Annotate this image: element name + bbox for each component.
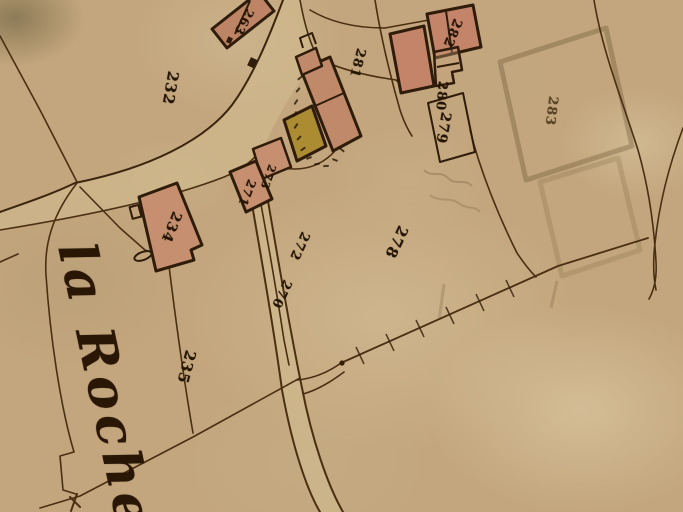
pencil-streak-1 — [439, 284, 444, 320]
boundary-234-east — [168, 258, 193, 433]
left-edge-short-line — [0, 254, 18, 262]
cadastral-map: 2632322812822802792832732712342722702782… — [0, 0, 683, 512]
far-east-curve — [654, 128, 683, 290]
pencil-streak-2 — [551, 281, 557, 308]
building-234-oval-mark — [133, 249, 153, 263]
hedge-ticks — [356, 280, 514, 364]
building-281 — [390, 26, 434, 93]
ghost-building-small — [540, 158, 640, 276]
parcel-label-283: 283 — [543, 95, 560, 127]
parcel-label-280: 280 — [433, 80, 449, 111]
boundary-283-west — [470, 130, 536, 277]
pencil-scribble-2 — [430, 195, 480, 212]
fork-south-line — [303, 372, 344, 394]
building-234-west-annex — [130, 205, 142, 219]
road-fill — [246, 166, 343, 512]
pencil-scribble-1 — [424, 170, 472, 186]
yard-north-line — [310, 10, 385, 28]
boundary-upper-left — [0, 36, 77, 182]
fork-north-line — [298, 363, 341, 380]
parcel-label-232: 232 — [160, 70, 181, 106]
hedge-line-start-blob — [339, 360, 344, 365]
